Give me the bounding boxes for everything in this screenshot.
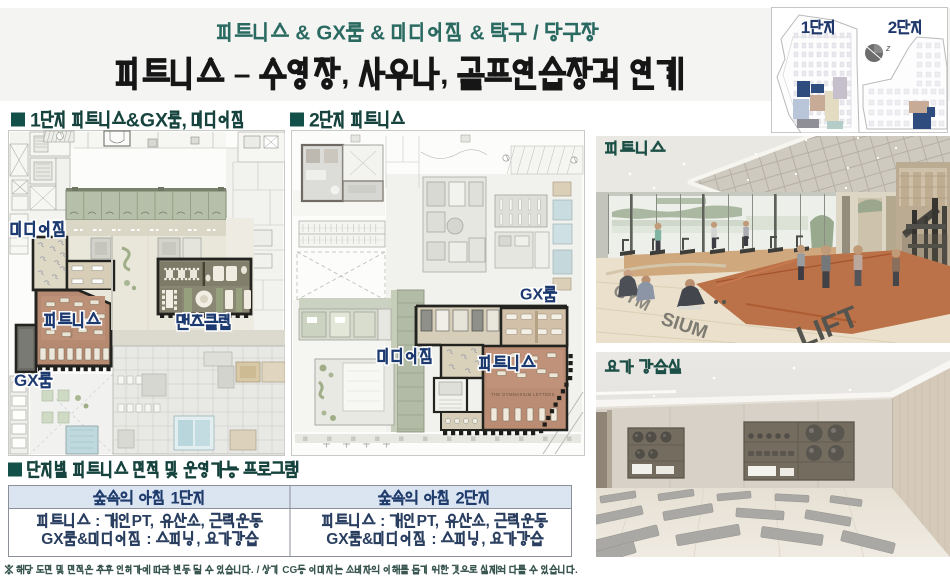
svg-text:THE GYMNASIUM LETTERS: THE GYMNASIUM LETTERS	[491, 392, 555, 397]
svg-text:2: 2	[455, 489, 464, 507]
svg-text:CG: CG	[282, 565, 297, 576]
svg-text:1: 1	[30, 109, 41, 131]
svg-text:PT,: PT,	[417, 513, 439, 530]
svg-text::: :	[146, 531, 151, 548]
svg-text:.: .	[575, 565, 578, 576]
svg-text:,: ,	[196, 531, 200, 548]
svg-text:1: 1	[170, 489, 179, 507]
svg-text:/: /	[257, 565, 260, 576]
svg-text:,: ,	[481, 531, 485, 548]
svg-text::: :	[380, 513, 385, 530]
svg-text:GX: GX	[520, 287, 543, 304]
svg-text:2: 2	[309, 109, 320, 131]
svg-text::: :	[95, 513, 100, 530]
svg-text:&GX: &GX	[126, 109, 168, 131]
svg-text:&: &	[77, 531, 88, 548]
svg-text:PT,: PT,	[132, 513, 154, 530]
svg-text:,: ,	[201, 513, 205, 530]
svg-text:GX: GX	[14, 371, 39, 390]
svg-text:,: ,	[486, 513, 490, 530]
svg-text:GX: GX	[41, 531, 64, 548]
svg-text:&: &	[362, 531, 373, 548]
svg-text:.: .	[251, 565, 254, 576]
svg-text:,: ,	[181, 109, 186, 131]
svg-text:GX: GX	[326, 531, 349, 548]
svg-text::: :	[431, 531, 436, 548]
